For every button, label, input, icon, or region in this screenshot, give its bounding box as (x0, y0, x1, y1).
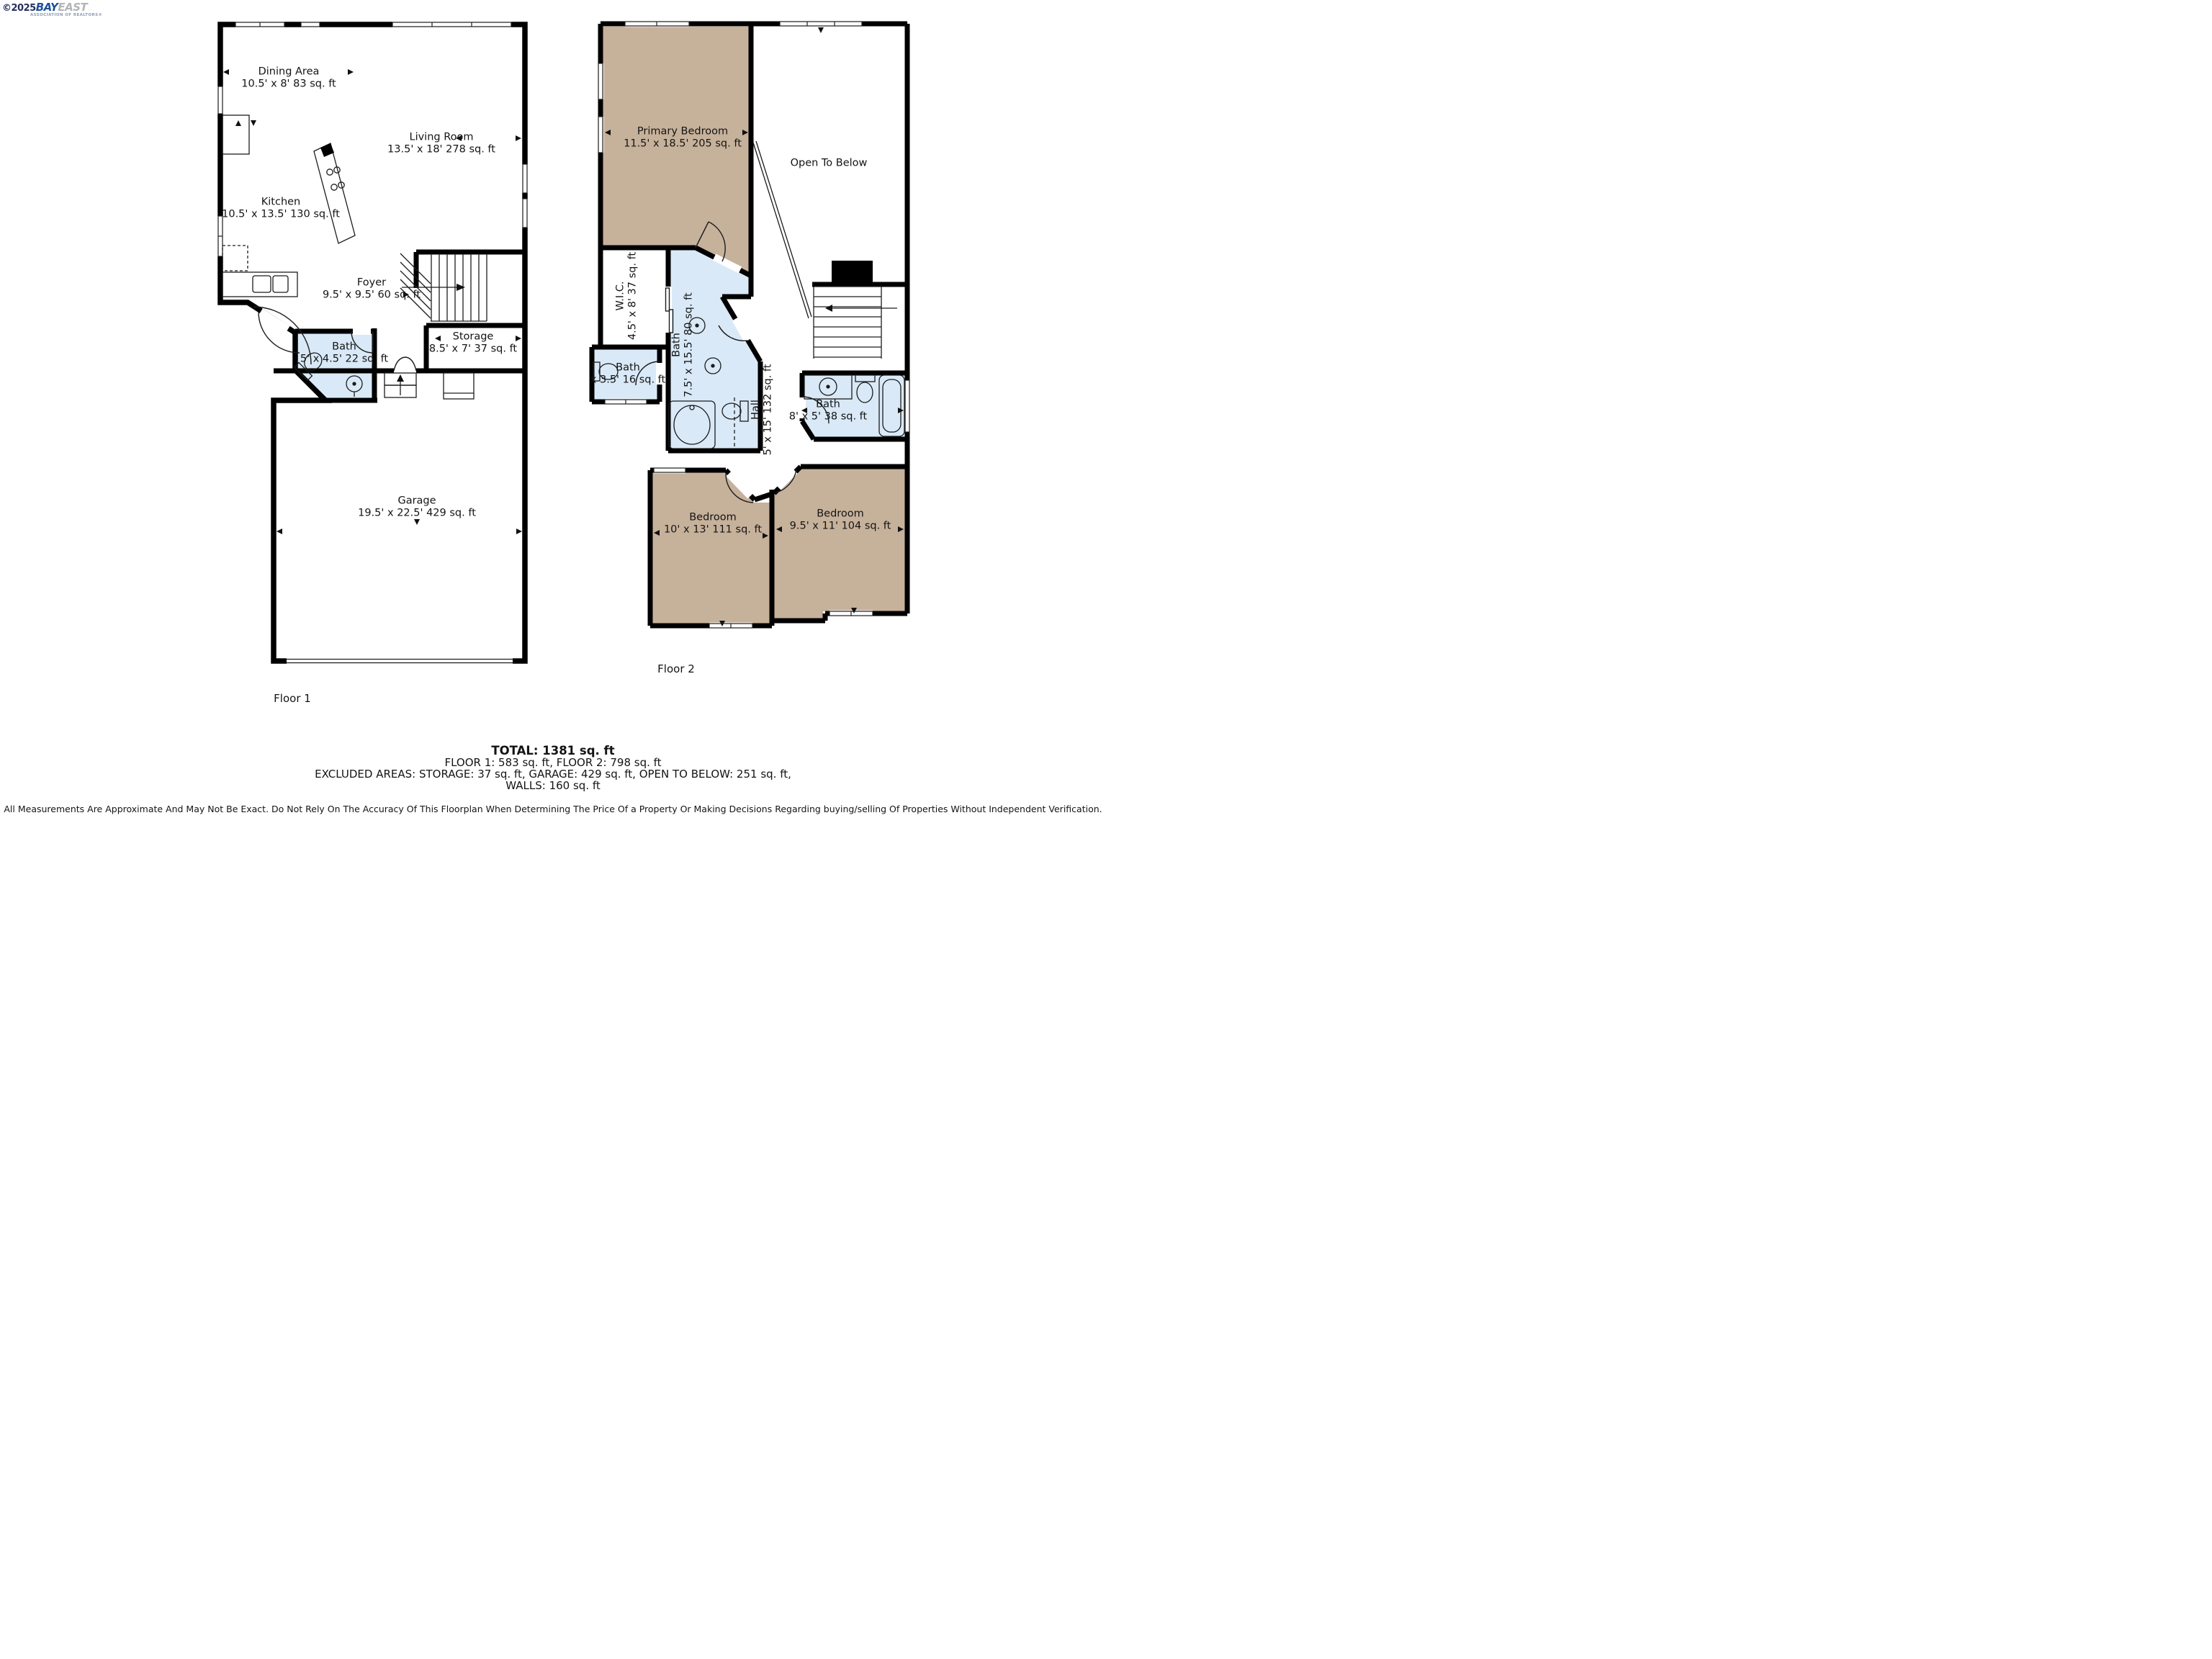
room-label-garage: Garage 19.5' x 22.5' 429 sq. ft (358, 495, 476, 518)
logo-brand-bay: BAY (36, 1, 58, 14)
logo-tagline: ASSOCIATION OF REALTORS® (30, 14, 102, 18)
summary-disclaimer: All Measurements Are Approximate And May… (0, 804, 1106, 815)
floor1-caption: Floor 1 (274, 692, 311, 705)
room-label-bath-right: Bath 8' x 5' 38 sq. ft (789, 398, 867, 422)
room-label-wic: W.I.C. 4.5' x 8' 37 sq. ft (614, 252, 638, 340)
floor2-plan (592, 21, 911, 629)
logo-copyright: ©2025 (2, 3, 36, 14)
logo: ©2025BAYEAST ASSOCIATION OF REALTORS® (2, 1, 102, 18)
floor2-stairs-icon (753, 141, 897, 359)
floor2-chimney-block (832, 261, 873, 284)
floor1-garage-fixtures-icon (385, 373, 474, 399)
summary-total: TOTAL: 1381 sq. ft (0, 745, 1106, 757)
room-label-bath-floor1: Bath 5' x 4.5' 22 sq. ft (300, 341, 388, 364)
summary-excluded: EXCLUDED AREAS: STORAGE: 37 sq. ft, GARA… (0, 768, 1106, 780)
room-label-bedroom-left: Bedroom 10' x 13' 111 sq. ft (664, 511, 762, 535)
room-label-foyer: Foyer 9.5' x 9.5' 60 sq. ft (323, 276, 421, 300)
room-label-storage: Storage 8.5' x 7' 37 sq. ft (429, 331, 517, 354)
floor2-caption: Floor 2 (657, 662, 695, 675)
summary-walls: WALLS: 160 sq. ft (0, 780, 1106, 791)
room-label-bedroom-right: Bedroom 9.5' x 11' 104 sq. ft (790, 508, 891, 531)
summary-floors: FLOOR 1: 583 sq. ft, FLOOR 2: 798 sq. ft (0, 757, 1106, 768)
floor2-primary-fill (603, 27, 751, 276)
room-label-hall: Hall 5' x 15' 132 sq. ft (750, 364, 773, 456)
summary-block: TOTAL: 1381 sq. ft FLOOR 1: 583 sq. ft, … (0, 745, 1106, 815)
logo-brand-east: EAST (58, 1, 87, 14)
floorplan-drawing (0, 0, 1106, 829)
room-label-bath-small: Bath x 3.5' 16 sq. ft (590, 361, 665, 385)
room-label-bath-main: Bath 7.5' x 15.5' 80 sq. ft (670, 292, 694, 397)
room-label-kitchen: Kitchen 10.5' x 13.5' 130 sq. ft (222, 196, 340, 220)
floor2-bedroom-right-fill (774, 467, 905, 619)
room-label-open-to-below: Open To Below (791, 158, 868, 170)
room-label-dining: Dining Area 10.5' x 8' 83 sq. ft (241, 66, 336, 89)
room-label-living: Living Room 13.5' x 18' 278 sq. ft (387, 131, 495, 155)
floorplan-page: { "logo": { "copyright": "©2025", "brand… (0, 0, 1106, 829)
room-label-primary-bedroom: Primary Bedroom 11.5' x 18.5' 205 sq. ft (624, 125, 742, 149)
